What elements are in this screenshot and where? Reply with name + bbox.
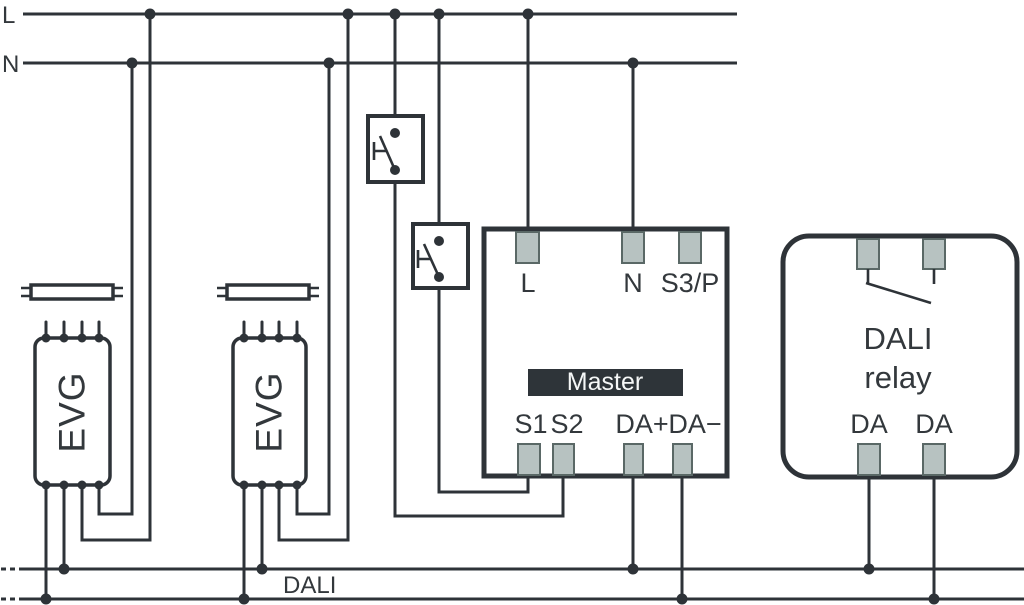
dali-relay-unit: DALI relay DA DA [783,236,1017,477]
relay-name-line1: DALI [864,321,933,356]
master-terminal-s3p [679,232,701,263]
relay-terminal-da2-label: DA [915,409,953,439]
evg1-top-pin-stubs [46,322,99,338]
evg1-pin-dot [42,334,51,343]
junction-dot [239,594,250,605]
evg2-pin-dot [258,334,267,343]
master-terminal-l [516,232,539,263]
ballast-2: EVG [233,322,306,490]
junction-dot [59,564,70,575]
pushbutton-switch-1 [368,116,423,182]
master-terminal-n [622,232,644,263]
junction-dot [929,594,940,605]
evg2-pin-dot [275,481,284,490]
l-rail-label: L [2,2,15,29]
relay-terminal-da1 [858,444,880,475]
master-terminal-daplus-label: DA+ [615,409,668,439]
switch2-terminal-top [434,236,444,246]
master-badge-label: Master [567,368,643,396]
master-terminal-s1 [518,444,540,475]
junction-dot [41,594,52,605]
evg2-top-pin-stubs [244,322,297,338]
relay-name-line2: relay [864,360,932,395]
relay-terminal-da1-label: DA [850,409,888,439]
junction-dot [628,564,639,575]
evg2-pin-dot [275,334,284,343]
junction-dot [145,9,156,20]
dali-wiring-schematic: L N DALI [0,0,1024,605]
lamp1-tube [31,285,113,299]
evg1-label: EVG [52,371,93,452]
master-terminal-s1-label: S1 [514,409,547,439]
evg1-pin-dot [78,334,87,343]
junction-dot [523,9,534,20]
junction-dot [434,9,445,20]
relay-box [783,236,1017,477]
switch2-terminal-bottom [434,272,444,282]
junction-dot [864,564,875,575]
master-terminal-s2 [553,444,574,475]
relay-terminal-top-1 [857,239,879,269]
ballast-1: EVG [35,322,110,490]
junction-dot [324,58,335,69]
evg1-pin-dot [78,481,87,490]
master-terminal-s3p-label: S3/P [661,268,720,298]
evg2-pin-dot [293,334,302,343]
evg2-pin-dot [240,334,249,343]
lamp-2 [217,285,319,299]
lamp2-tube [227,285,309,299]
evg2-pin-dot [293,481,302,490]
junction-dot [343,9,354,20]
evg1-pin-dot [60,334,69,343]
dali-bus-label: DALI [283,572,336,599]
junction-dot [390,9,401,20]
evg2-label: EVG [249,371,290,452]
master-terminal-daminus-label: DA− [668,409,721,439]
master-terminal-daminus [673,444,692,475]
junction-dot [628,58,639,69]
master-terminal-daplus [624,444,643,475]
junction-dot [257,564,268,575]
master-terminal-s2-label: S2 [550,409,583,439]
master-unit: L N S3/P Master S1 S2 DA+ DA− [484,229,727,476]
evg2-pin-dot [240,481,249,490]
switch1-terminal-top [390,128,400,138]
switch1-terminal-bottom [390,165,400,175]
relay-terminal-da2 [923,444,945,475]
master-terminal-n-label: N [623,268,643,298]
master-terminal-l-label: L [520,268,535,298]
junction-dot [127,58,138,69]
lamp-1 [21,285,123,299]
pushbutton-switch-2 [413,224,468,288]
wiring-diagram: L N DALI [0,0,1024,605]
relay-terminal-top-2 [923,239,945,269]
mains-rails: L N [2,2,737,78]
junction-dot [677,594,688,605]
evg1-pin-dot [95,481,104,490]
evg1-pin-dot [42,481,51,490]
evg1-pin-dot [60,481,69,490]
evg1-pin-dot [95,334,104,343]
evg2-pin-dot [258,481,267,490]
n-rail-label: N [2,51,19,78]
